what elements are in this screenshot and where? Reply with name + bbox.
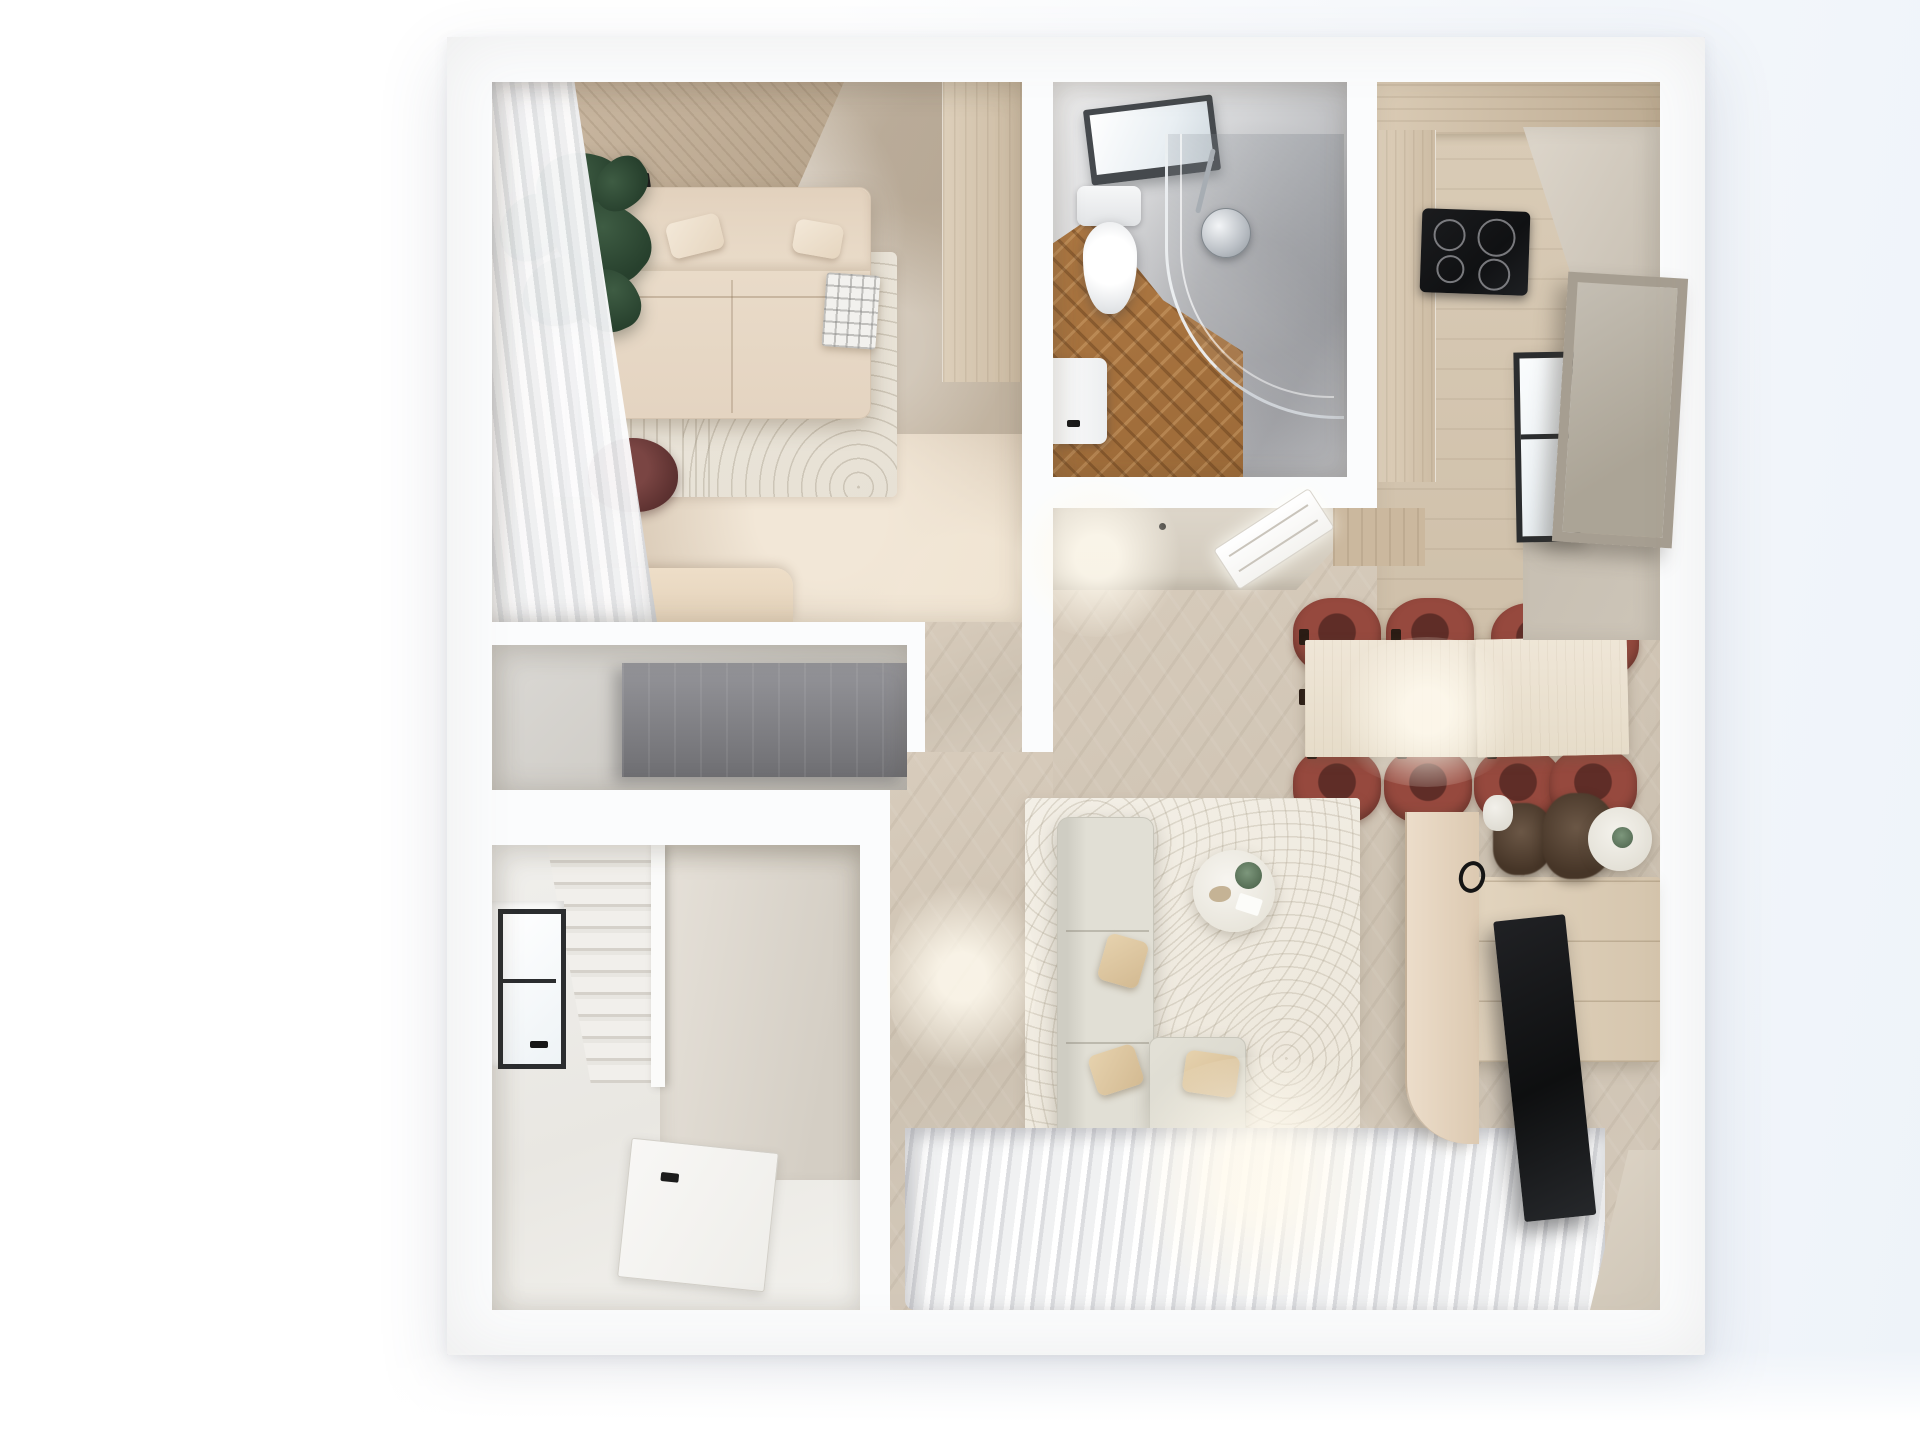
- cushion-seam: [731, 280, 733, 413]
- room-bedroom: [492, 82, 1022, 622]
- room-stair-hall: [492, 845, 860, 1310]
- sink-tap: [1067, 420, 1080, 427]
- green-glass-cup: [1612, 827, 1633, 848]
- leaning-artwork: [1552, 272, 1688, 549]
- plaid-throw: [821, 272, 880, 350]
- render-canvas: [0, 0, 1920, 1440]
- wood-soffit: [1333, 508, 1425, 566]
- window-mullion: [498, 979, 556, 983]
- floor-plan: [447, 37, 1705, 1355]
- room-bathroom: [1053, 82, 1347, 477]
- shower-head: [1201, 208, 1251, 258]
- induction-cooktop: [1420, 208, 1531, 296]
- window-handle: [530, 1041, 548, 1048]
- ceiling-spot: [1159, 523, 1166, 530]
- bathroom-sink: [1053, 358, 1107, 444]
- hall-inner-wall: [660, 845, 860, 1180]
- round-tray: [1588, 807, 1652, 871]
- entry-door: [617, 1138, 779, 1293]
- door-handle: [660, 1172, 679, 1183]
- coffee-table: [1193, 850, 1275, 932]
- stair-divider-wall: [651, 845, 665, 1087]
- bedroom-doorway-floor: [925, 622, 1022, 752]
- living-sofa: [1057, 817, 1154, 1159]
- green-glass-vase: [1235, 862, 1262, 889]
- white-vase: [1483, 795, 1513, 831]
- kitchen-upper-cabinets: [1377, 82, 1660, 134]
- throw-pillow: [1181, 1049, 1240, 1098]
- dried-flower: [1209, 886, 1231, 902]
- toilet-tank: [1077, 186, 1141, 226]
- kitchen-tall-cabinet: [1377, 130, 1436, 482]
- gray-wardrobe: [622, 663, 907, 777]
- room-storage-niche: [492, 645, 907, 790]
- bedroom-wardrobe-column: [942, 82, 1022, 382]
- decor-card: [1235, 893, 1263, 917]
- living-window-curtains: [905, 1128, 1605, 1310]
- dining-table-slab: [1475, 636, 1629, 757]
- dining-table-slab: [1305, 640, 1478, 757]
